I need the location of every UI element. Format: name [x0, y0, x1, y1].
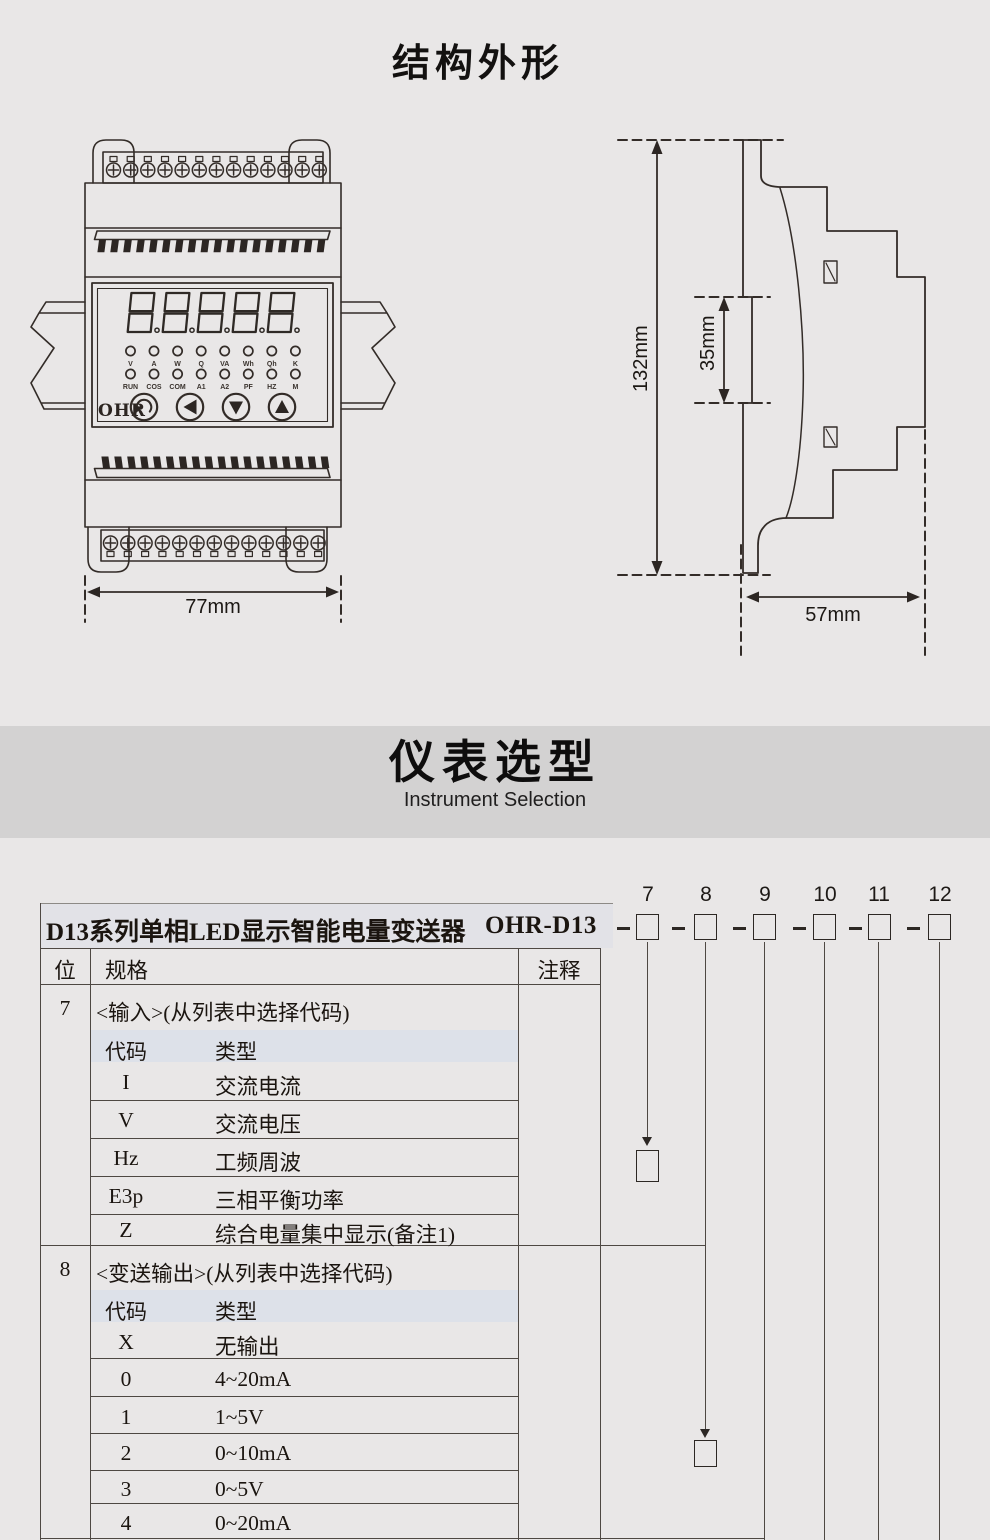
selector-line-10 [824, 942, 825, 1540]
selector-line-11 [878, 942, 879, 1540]
subheader-highlight [91, 1290, 518, 1322]
width-dimension-label: 77mm [185, 596, 241, 618]
section-pos: 8 [40, 1257, 90, 1282]
code-dash [793, 927, 806, 930]
lower-vent-strip [95, 469, 331, 478]
depth-dimension-label: 57mm [805, 604, 861, 626]
type-cell: 0~20mA [215, 1511, 291, 1536]
subheader-code: 代码 [105, 1036, 147, 1066]
selection-title: 仪表选型 [0, 726, 990, 790]
led-label: PF [244, 384, 254, 391]
code-cell: 4 [96, 1511, 156, 1536]
code-box-10 [813, 914, 836, 940]
row-separator [90, 1470, 518, 1471]
product-title: D13系列单相LED显示智能电量变送器 [46, 912, 465, 948]
upper-vent-strip [95, 231, 331, 240]
code-cell: Hz [96, 1146, 156, 1171]
col-header-note: 注释 [518, 954, 600, 985]
front-view-drawing: V A W Q VA Wh Qh K RUN COS COM A1 A2 PF … [31, 140, 395, 622]
code-cell: I [96, 1070, 156, 1095]
code-box-12 [928, 914, 951, 940]
row-separator [90, 1396, 518, 1397]
position-number: 10 [805, 883, 845, 907]
led-label: A2 [220, 384, 229, 391]
subheader-code: 代码 [105, 1296, 147, 1326]
code-cell: X [96, 1330, 156, 1355]
target-box-7 [636, 1150, 659, 1182]
type-cell: 三相平衡功率 [215, 1184, 344, 1215]
selector-line-9 [764, 942, 765, 1540]
led-label: RUN [123, 384, 138, 391]
side-view-drawing: 132mm 35mm 57mm [618, 140, 925, 655]
led-label: Q [198, 361, 204, 368]
led-label: A1 [197, 384, 206, 391]
led-label: COS [146, 384, 162, 391]
led-label: A [151, 361, 156, 368]
subheader-highlight [91, 1030, 518, 1062]
right-mount-bracket [341, 302, 395, 409]
down-arrow-icon [700, 1429, 710, 1438]
table-border-line [518, 948, 519, 1540]
subheader-type: 类型 [215, 1296, 257, 1326]
code-box-8 [694, 914, 717, 940]
led-label: M [292, 384, 298, 391]
type-cell: 0~10mA [215, 1441, 291, 1466]
row-separator [90, 1176, 518, 1177]
top-terminal-screws [107, 157, 327, 178]
led-label: Wh [243, 361, 254, 368]
code-cell: Z [96, 1218, 156, 1243]
col-header-spec: 规格 [105, 954, 148, 985]
top-right-ear [289, 140, 330, 183]
model-prefix: OHR-D13 [485, 912, 597, 940]
led-label: VA [220, 361, 229, 368]
selector-line-12 [939, 942, 940, 1540]
rail-dimension-label: 35mm [697, 315, 719, 371]
type-cell: 无输出 [215, 1330, 280, 1361]
table-border-line [600, 948, 601, 1540]
row-separator [90, 1503, 518, 1504]
type-cell: 4~20mA [215, 1367, 291, 1392]
section-title: <输入>(从列表中选择代码) [96, 996, 350, 1027]
height-dimension-label: 132mm [630, 325, 652, 392]
table-border-line [40, 948, 601, 949]
type-cell: 交流电压 [215, 1108, 301, 1139]
datasheet-page: 结构外形 [0, 0, 990, 1540]
led-label: Qh [267, 361, 277, 368]
position-number: 7 [628, 883, 668, 907]
left-triangle-icon [184, 400, 197, 415]
seven-segment-display [128, 293, 299, 332]
position-number: 12 [920, 883, 960, 907]
section-title: <变送输出>(从列表中选择代码) [96, 1257, 393, 1288]
type-cell: 工频周波 [215, 1146, 301, 1177]
code-dash [849, 927, 862, 930]
selection-subtitle: Instrument Selection [0, 789, 990, 812]
led-label: W [174, 361, 181, 368]
col-header-pos: 位 [40, 954, 90, 985]
led-label: COM [169, 384, 186, 391]
side-profile [743, 140, 925, 573]
type-cell: 综合电量集中显示(备注1) [215, 1218, 455, 1249]
selector-line-7 [647, 942, 648, 1138]
code-dash [733, 927, 746, 930]
type-cell: 1~5V [215, 1405, 264, 1430]
lower-vent-teeth [101, 457, 329, 469]
row-separator [90, 1100, 518, 1101]
upper-vent-teeth [97, 240, 325, 252]
type-cell: 交流电流 [215, 1070, 301, 1101]
up-triangle-icon [275, 400, 289, 413]
subheader-type: 类型 [215, 1036, 257, 1066]
target-box-8 [694, 1440, 717, 1467]
housing-seam [780, 188, 803, 518]
code-dash [672, 927, 685, 930]
code-cell: 0 [96, 1367, 156, 1392]
row-separator [90, 1138, 518, 1139]
row-separator [90, 1433, 518, 1434]
code-cell: V [96, 1108, 156, 1133]
panel-buttons [131, 394, 295, 420]
row-separator [90, 1358, 518, 1359]
code-dash [617, 927, 630, 930]
table-border-line [40, 1538, 765, 1539]
code-cell: 1 [96, 1405, 156, 1430]
code-box-7 [636, 914, 659, 940]
dimension-drawings: V A W Q VA Wh Qh K RUN COS COM A1 A2 PF … [0, 0, 990, 700]
left-mount-bracket [31, 302, 85, 409]
type-cell: 0~5V [215, 1477, 264, 1502]
led-label: V [128, 361, 133, 368]
down-triangle-icon [229, 402, 243, 415]
position-number: 9 [745, 883, 785, 907]
led-label: K [293, 361, 298, 368]
code-box-11 [868, 914, 891, 940]
section-pos: 7 [40, 996, 90, 1021]
code-cell: 2 [96, 1441, 156, 1466]
ordering-section: D13系列单相LED显示智能电量变送器 OHR-D13 7 8 9 10 11 … [0, 850, 990, 1540]
led-indicators: V A W Q VA Wh Qh K RUN COS COM A1 A2 PF … [123, 346, 300, 391]
bottom-terminal-screws [104, 536, 326, 557]
code-cell: E3p [96, 1184, 156, 1209]
code-cell: 3 [96, 1477, 156, 1502]
position-number: 8 [686, 883, 726, 907]
down-arrow-icon [642, 1137, 652, 1146]
selection-band: 仪表选型 Instrument Selection [0, 726, 990, 838]
device-body [85, 183, 341, 527]
position-number: 11 [859, 883, 899, 907]
code-box-9 [753, 914, 776, 940]
led-label: HZ [267, 384, 277, 391]
code-dash [907, 927, 920, 930]
selector-line-8 [705, 942, 706, 1430]
